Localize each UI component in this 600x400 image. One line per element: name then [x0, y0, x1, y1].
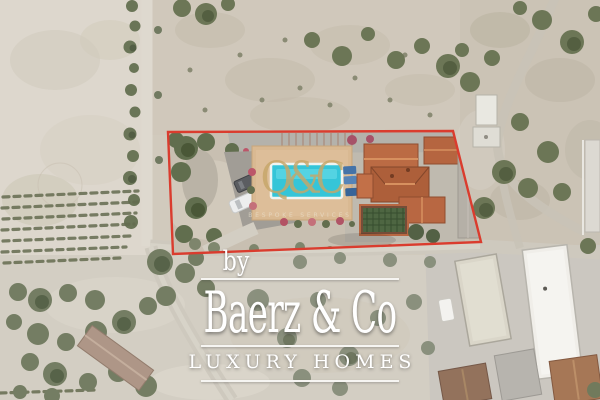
aerial-photo-canvas: [0, 0, 600, 400]
haze-overlay: [0, 0, 600, 400]
aerial-photo: Q&C BESPOKE SERVICES by Baerz & Co LUXUR…: [0, 0, 600, 400]
